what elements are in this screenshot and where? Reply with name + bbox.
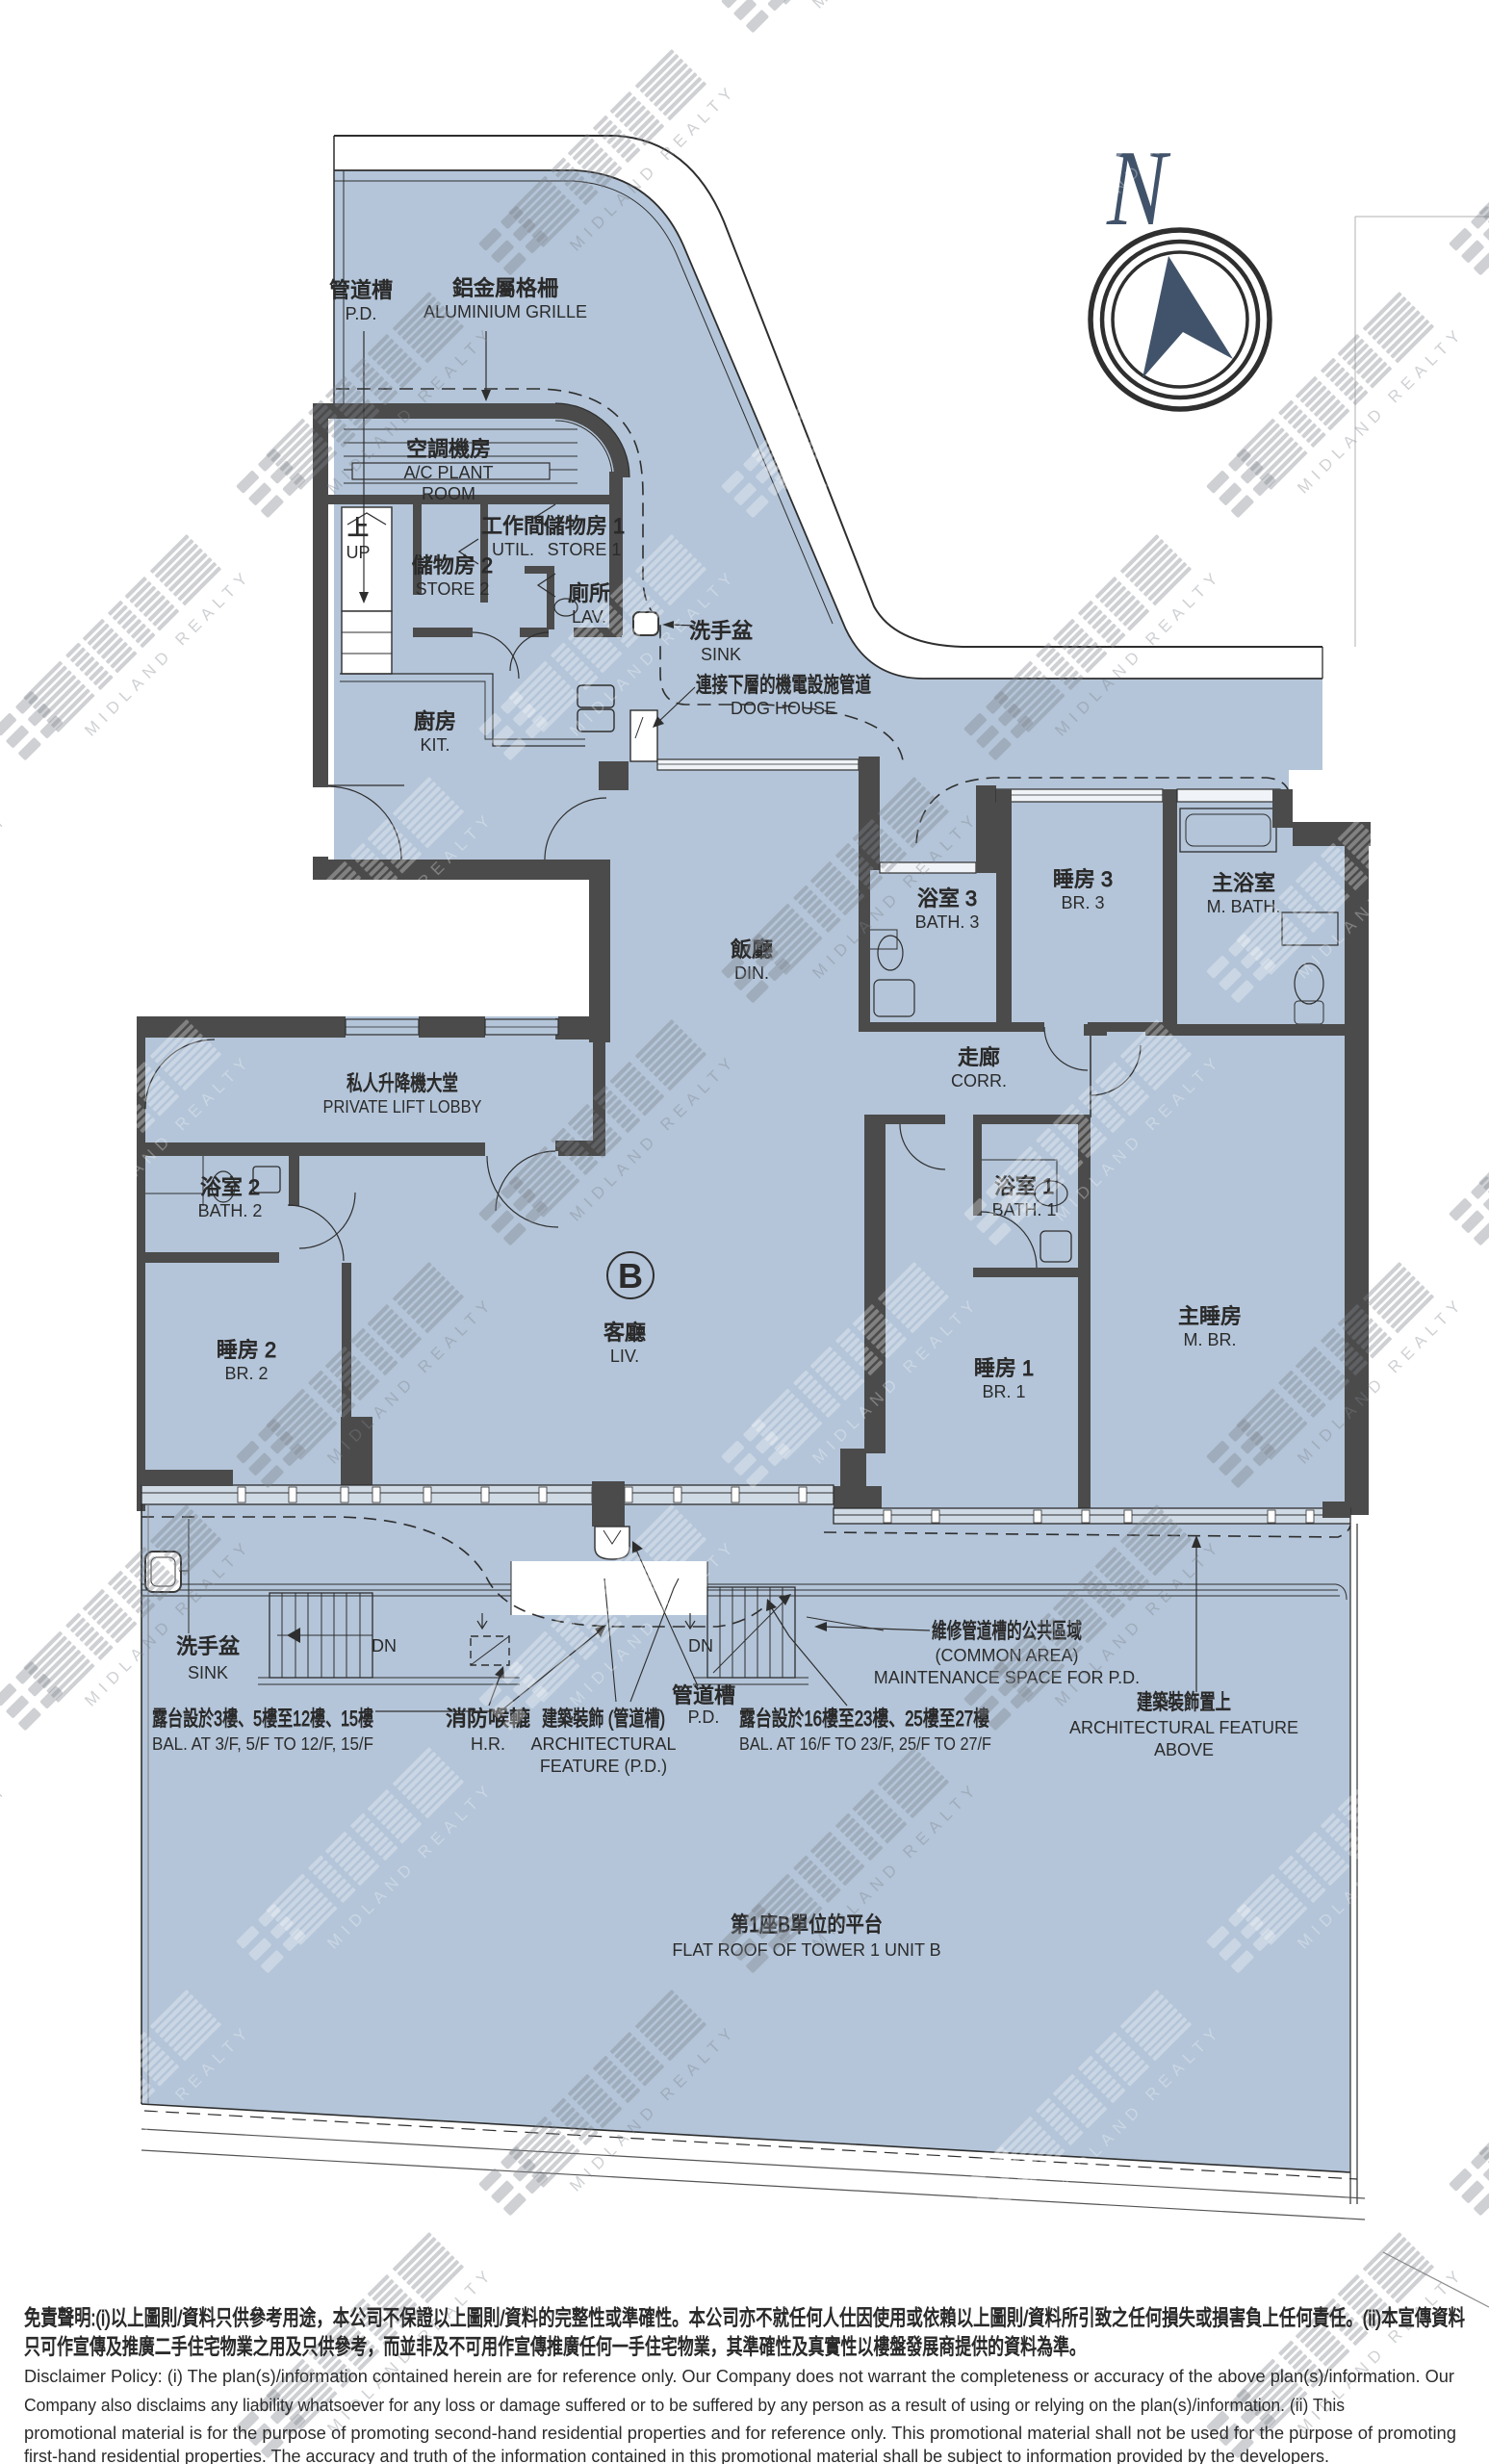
svg-text:BATH. 2: BATH. 2 — [198, 1201, 263, 1220]
svg-text:空調機房: 空調機房 — [406, 437, 491, 461]
svg-text:PRIVATE LIFT LOBBY: PRIVATE LIFT LOBBY — [323, 1097, 482, 1116]
svg-text:P.D.: P.D. — [688, 1707, 720, 1727]
svg-text:STORE 1: STORE 1 — [548, 540, 622, 559]
svg-text:儲物房 1: 儲物房 1 — [544, 514, 625, 538]
svg-text:露台設於16樓至23樓、25樓至27樓: 露台設於16樓至23樓、25樓至27樓 — [739, 1707, 989, 1731]
svg-text:DN: DN — [372, 1636, 397, 1655]
svg-text:DOG HOUSE: DOG HOUSE — [731, 699, 836, 718]
svg-text:STORE 2: STORE 2 — [416, 579, 490, 599]
svg-text:LIV.: LIV. — [610, 1347, 639, 1366]
svg-text:SINK: SINK — [701, 645, 741, 664]
svg-text:上: 上 — [347, 516, 369, 540]
svg-text:洗手盆: 洗手盆 — [176, 1634, 240, 1658]
svg-text:first-hand residential propert: first-hand residential properties. The a… — [24, 2447, 1329, 2464]
svg-text:FLAT ROOF OF TOWER 1 UNIT B: FLAT ROOF OF TOWER 1 UNIT B — [672, 1940, 940, 1960]
svg-text:走廊: 走廊 — [958, 1045, 1000, 1069]
svg-text:UP: UP — [346, 543, 370, 562]
svg-text:洗手盆: 洗手盆 — [689, 619, 753, 643]
svg-text:免責聲明:(i)以上圖則/資料只供參考用途，本公司不保證以上: 免責聲明:(i)以上圖則/資料只供參考用途，本公司不保證以上圖則/資料的完整性或… — [24, 2306, 1465, 2330]
svg-text:只可作宣傳及推廣二手住宅物業之用及只供參考，而並非及不可用作: 只可作宣傳及推廣二手住宅物業之用及只供參考，而並非及不可用作宣傳推廣任何一手住宅… — [24, 2335, 1086, 2359]
svg-text:BAL. AT 16/F TO 23/F, 25/F TO: BAL. AT 16/F TO 23/F, 25/F TO 27/F — [739, 1734, 991, 1754]
svg-text:Company also disclaims any lia: Company also disclaims any liability wha… — [24, 2396, 1345, 2415]
svg-text:私人升降機大堂: 私人升降機大堂 — [347, 1071, 458, 1095]
svg-text:客廳: 客廳 — [603, 1321, 646, 1345]
svg-text:ROOM: ROOM — [422, 484, 475, 503]
svg-text:管道槽: 管道槽 — [329, 278, 393, 302]
svg-text:浴室 3: 浴室 3 — [917, 886, 977, 911]
svg-text:睡房 3: 睡房 3 — [1053, 867, 1113, 891]
svg-text:建築裝飾置上: 建築裝飾置上 — [1137, 1690, 1231, 1714]
svg-text:UTIL.: UTIL. — [492, 540, 534, 559]
svg-text:BR. 2: BR. 2 — [224, 1364, 268, 1383]
svg-text:建築裝飾 (管道槽): 建築裝飾 (管道槽) — [542, 1707, 665, 1731]
svg-text:Disclaimer Policy: (i) The pla: Disclaimer Policy: (i) The plan(s)/infor… — [24, 2367, 1454, 2386]
svg-text:鋁金屬格柵: 鋁金屬格柵 — [452, 276, 558, 300]
svg-text:promotional material is for th: promotional material is for the purpose … — [24, 2424, 1456, 2443]
svg-text:A/C PLANT: A/C PLANT — [403, 463, 493, 482]
svg-text:H.R.: H.R. — [471, 1734, 505, 1754]
svg-text:工作間: 工作間 — [481, 514, 545, 538]
svg-text:ARCHITECTURAL: ARCHITECTURAL — [530, 1734, 676, 1754]
svg-text:睡房 1: 睡房 1 — [974, 1356, 1034, 1380]
svg-text:管道槽: 管道槽 — [672, 1683, 735, 1707]
svg-text:SINK: SINK — [188, 1663, 228, 1682]
svg-text:FEATURE (P.D.): FEATURE (P.D.) — [540, 1757, 667, 1776]
svg-text:儲物房 2: 儲物房 2 — [412, 553, 493, 577]
svg-text:BR. 3: BR. 3 — [1061, 893, 1104, 912]
svg-text:廁所: 廁所 — [568, 581, 610, 605]
svg-text:主睡房: 主睡房 — [1178, 1304, 1242, 1328]
svg-text:M. BR.: M. BR. — [1183, 1330, 1236, 1349]
svg-text:浴室 2: 浴室 2 — [200, 1175, 260, 1199]
svg-text:睡房 2: 睡房 2 — [217, 1338, 276, 1362]
svg-text:BATH. 3: BATH. 3 — [915, 912, 980, 932]
svg-text:P.D.: P.D. — [346, 304, 377, 323]
svg-text:露台設於3樓、5樓至12樓、15樓: 露台設於3樓、5樓至12樓、15樓 — [152, 1707, 373, 1731]
svg-text:BR. 1: BR. 1 — [982, 1382, 1025, 1401]
svg-text:BAL. AT 3/F, 5/F TO 12/F, 15/F: BAL. AT 3/F, 5/F TO 12/F, 15/F — [152, 1734, 373, 1754]
svg-text:ABOVE: ABOVE — [1154, 1740, 1214, 1759]
svg-text:KIT.: KIT. — [420, 735, 449, 755]
svg-text:B: B — [618, 1256, 643, 1296]
svg-text:連接下層的機電設施管道: 連接下層的機電設施管道 — [696, 673, 871, 697]
svg-text:DN: DN — [688, 1636, 713, 1655]
svg-text:ARCHITECTURAL FEATURE: ARCHITECTURAL FEATURE — [1069, 1718, 1298, 1737]
svg-text:廚房: 廚房 — [414, 709, 456, 733]
svg-text:CORR.: CORR. — [951, 1071, 1007, 1091]
svg-text:主浴室: 主浴室 — [1212, 871, 1275, 895]
